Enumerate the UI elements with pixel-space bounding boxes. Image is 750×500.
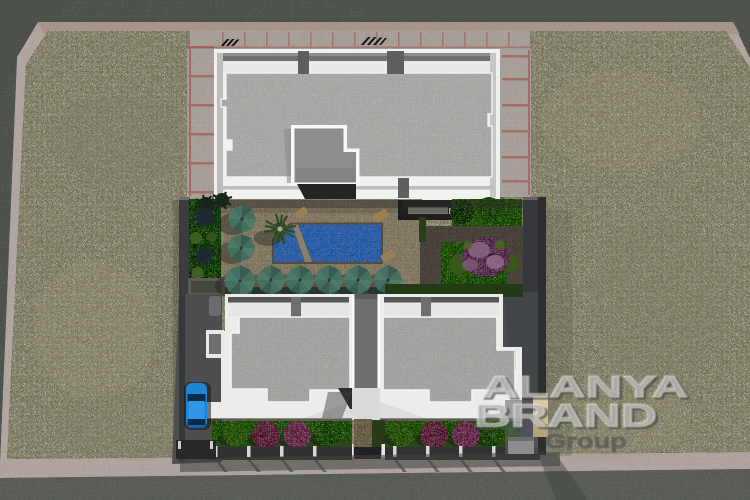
svg-text:Group: Group <box>545 431 627 453</box>
svg-text:BRAND: BRAND <box>474 398 657 434</box>
